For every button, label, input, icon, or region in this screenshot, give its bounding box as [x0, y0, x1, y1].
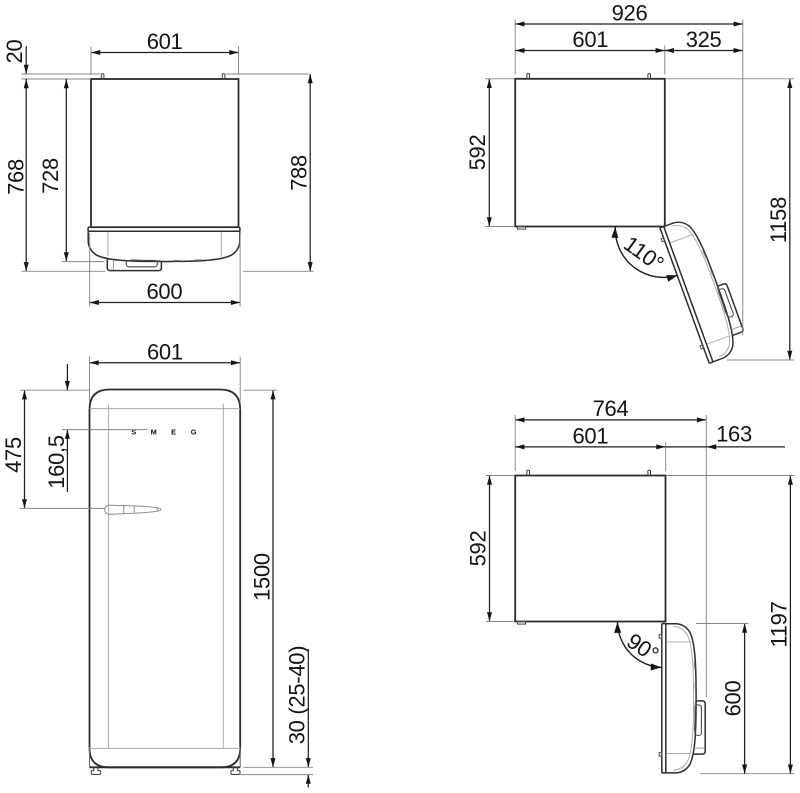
svg-text:325: 325: [686, 27, 722, 52]
svg-text:M: M: [151, 428, 157, 437]
svg-text:160,5: 160,5: [44, 435, 69, 489]
svg-text:20: 20: [2, 40, 27, 64]
svg-text:601: 601: [572, 423, 608, 448]
svg-text:E: E: [171, 428, 176, 437]
svg-text:600: 600: [721, 681, 746, 717]
svg-text:728: 728: [38, 158, 63, 194]
svg-text:788: 788: [287, 155, 312, 191]
svg-text:600: 600: [146, 279, 182, 304]
svg-text:601: 601: [147, 339, 183, 364]
svg-text:G: G: [191, 428, 197, 437]
svg-text:1158: 1158: [766, 197, 791, 243]
svg-text:1500: 1500: [249, 553, 274, 601]
svg-text:30 (25-40): 30 (25-40): [285, 646, 310, 745]
svg-text:764: 764: [593, 396, 629, 421]
svg-text:592: 592: [465, 135, 490, 171]
svg-text:S: S: [131, 428, 136, 437]
svg-text:592: 592: [466, 531, 491, 567]
svg-text:601: 601: [572, 27, 608, 52]
svg-text:926: 926: [612, 1, 648, 26]
svg-text:163: 163: [716, 421, 752, 446]
svg-text:601: 601: [147, 29, 183, 54]
svg-text:768: 768: [4, 159, 29, 195]
svg-text:475: 475: [1, 437, 26, 473]
svg-text:1197: 1197: [766, 601, 791, 647]
